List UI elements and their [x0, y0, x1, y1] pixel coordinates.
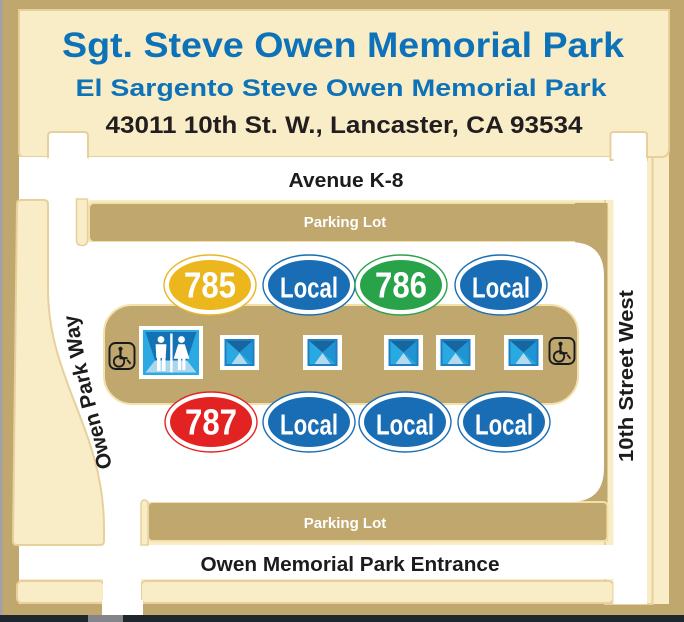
svg-text:Local: Local: [376, 410, 434, 442]
svg-text:787: 787: [185, 402, 237, 443]
svg-text:Parking Lot: Parking Lot: [304, 214, 387, 231]
svg-text:Local: Local: [475, 410, 533, 442]
svg-text:Local: Local: [280, 273, 338, 305]
svg-text:Owen Memorial Park Entrance: Owen Memorial Park Entrance: [201, 554, 500, 576]
svg-text:Avenue K-8: Avenue K-8: [289, 170, 404, 192]
svg-text:Sgt. Steve Owen Memorial Park: Sgt. Steve Owen Memorial Park: [62, 26, 625, 65]
svg-text:Parking Lot: Parking Lot: [304, 515, 387, 532]
svg-text:El Sargento Steve Owen Memoria: El Sargento Steve Owen Memorial Park: [76, 75, 608, 102]
svg-text:Local: Local: [472, 273, 530, 305]
svg-text:786: 786: [375, 265, 427, 306]
svg-text:Local: Local: [280, 410, 338, 442]
svg-text:10th Street West: 10th Street West: [616, 290, 638, 462]
svg-text:43011 10th St. W., Lancaster,: 43011 10th St. W., Lancaster, CA 93534: [106, 112, 584, 139]
svg-text:785: 785: [184, 265, 236, 306]
